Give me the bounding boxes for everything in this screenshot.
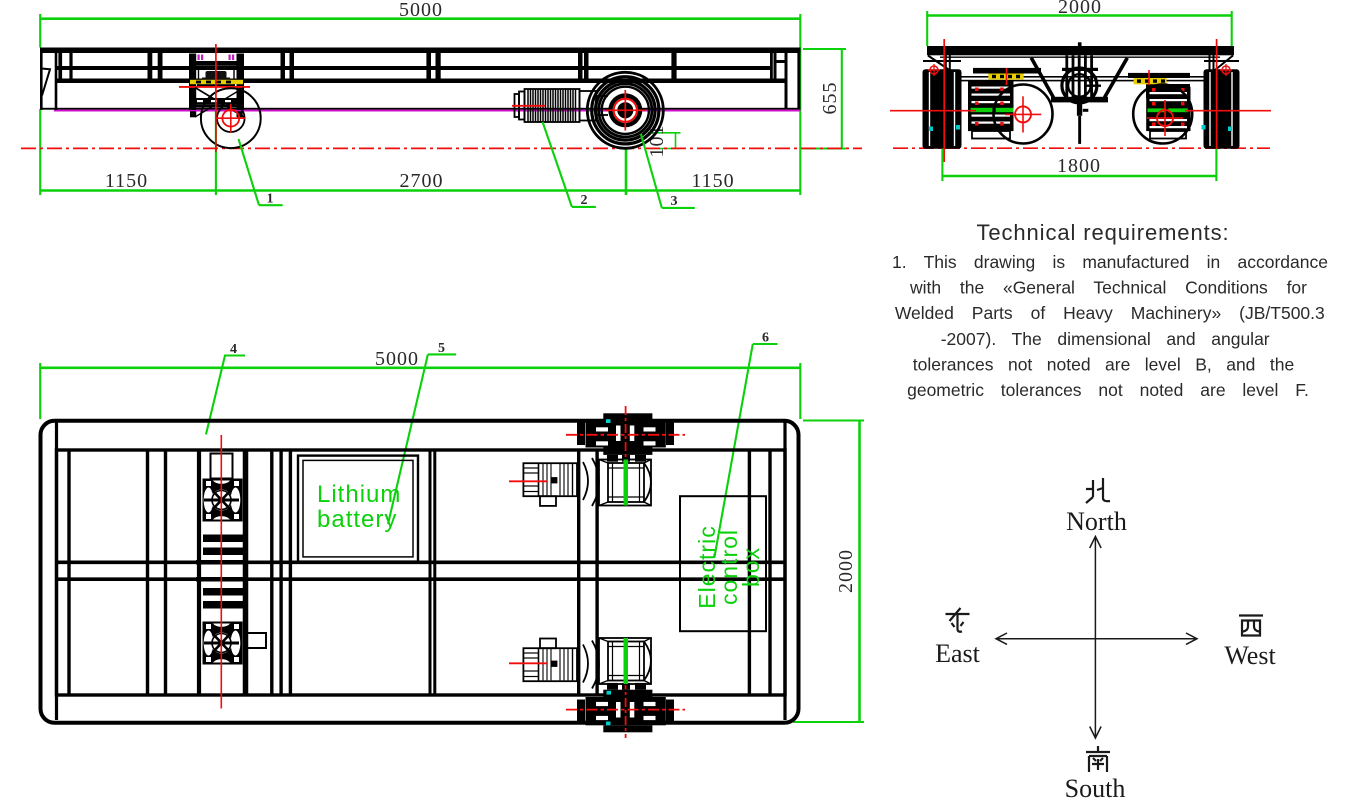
svg-text:box: box [738,547,764,587]
svg-text:4: 4 [230,342,237,357]
svg-text:North: North [1066,507,1127,536]
svg-text:1: 1 [267,192,274,207]
svg-text:with the «General Technical Co: with the «General Technical Conditions f… [909,278,1307,298]
svg-text:655: 655 [819,82,841,115]
svg-text:Technical requirements:: Technical requirements: [976,220,1229,245]
svg-text:5000: 5000 [399,0,443,21]
svg-text:South: South [1065,774,1126,801]
svg-text:West: West [1224,641,1276,670]
svg-text:Lithium: Lithium [317,481,401,508]
svg-text:2000: 2000 [835,549,857,593]
svg-text:5000: 5000 [375,348,419,370]
svg-text:battery: battery [317,506,397,533]
svg-text:East: East [935,639,981,668]
svg-text:1. This drawing is manufacture: 1. This drawing is manufactured in accor… [892,252,1328,272]
svg-text:2000: 2000 [1058,0,1102,18]
svg-text:3: 3 [671,194,678,209]
svg-text:2: 2 [581,193,588,208]
svg-text:1150: 1150 [105,170,148,192]
svg-text:tolerances not noted are level: tolerances not noted are level B, and th… [913,354,1294,374]
svg-text:1800: 1800 [1057,155,1101,177]
svg-text:6: 6 [762,331,769,346]
svg-text:geometric tolerances not noted: geometric tolerances not noted are level… [907,380,1309,400]
svg-text:-2007). The dimensional and an: -2007). The dimensional and angular [941,329,1270,349]
svg-text:5: 5 [438,341,445,356]
svg-text:1150: 1150 [691,170,734,192]
svg-text:Welded Parts of Heavy Machiner: Welded Parts of Heavy Machinery» (JB/T50… [895,303,1325,323]
svg-text:2700: 2700 [400,170,444,192]
